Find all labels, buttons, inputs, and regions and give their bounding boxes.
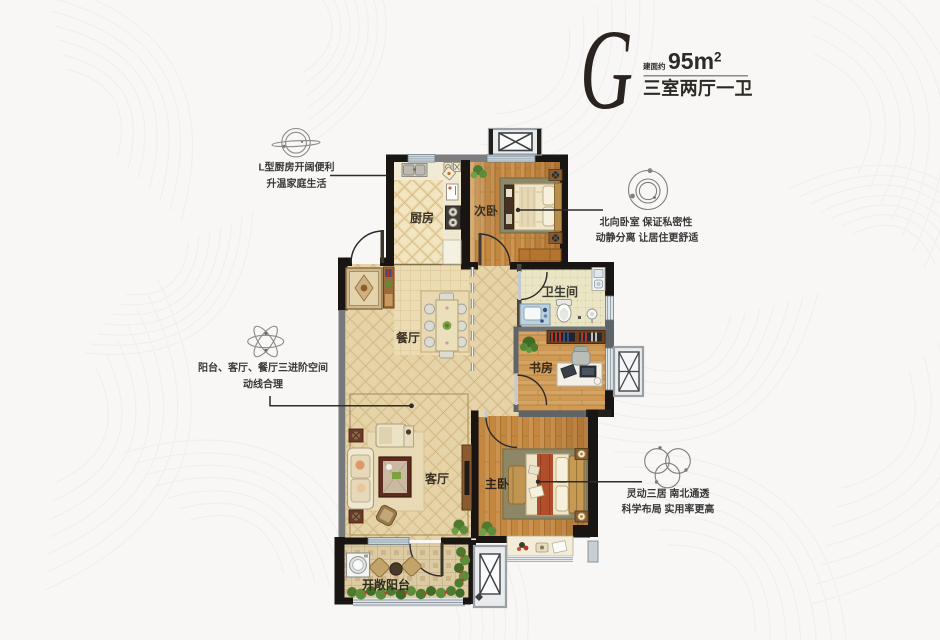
svg-text:L型厨房开阔便利: L型厨房开阔便利 xyxy=(258,161,334,174)
svg-text:厨房: 厨房 xyxy=(410,210,434,225)
svg-text:次卧: 次卧 xyxy=(474,203,498,218)
svg-text:G: G xyxy=(580,6,633,133)
svg-text:开敞阳台: 开敞阳台 xyxy=(362,577,410,592)
svg-text:阳台、客厅、餐厅三进阶空间: 阳台、客厅、餐厅三进阶空间 xyxy=(198,361,328,374)
svg-text:95m2: 95m2 xyxy=(668,48,722,74)
svg-text:北向卧室 保证私密性: 北向卧室 保证私密性 xyxy=(600,216,693,229)
svg-text:主卧: 主卧 xyxy=(485,476,509,491)
svg-text:建面约: 建面约 xyxy=(642,61,666,71)
svg-text:书房: 书房 xyxy=(529,360,553,375)
svg-text:科学布局 实用率更高: 科学布局 实用率更高 xyxy=(622,503,715,516)
svg-text:动线合理: 动线合理 xyxy=(243,378,283,391)
svg-text:动静分离 让居住更舒适: 动静分离 让居住更舒适 xyxy=(596,231,699,244)
svg-text:三室两厅一卫: 三室两厅一卫 xyxy=(643,78,753,99)
svg-text:餐厅: 餐厅 xyxy=(396,330,420,345)
svg-text:卫生间: 卫生间 xyxy=(542,284,578,299)
svg-text:升温家庭生活: 升温家庭生活 xyxy=(267,177,327,190)
svg-text:客厅: 客厅 xyxy=(424,471,449,486)
svg-text:灵动三居 南北通透: 灵动三居 南北通透 xyxy=(627,487,711,500)
